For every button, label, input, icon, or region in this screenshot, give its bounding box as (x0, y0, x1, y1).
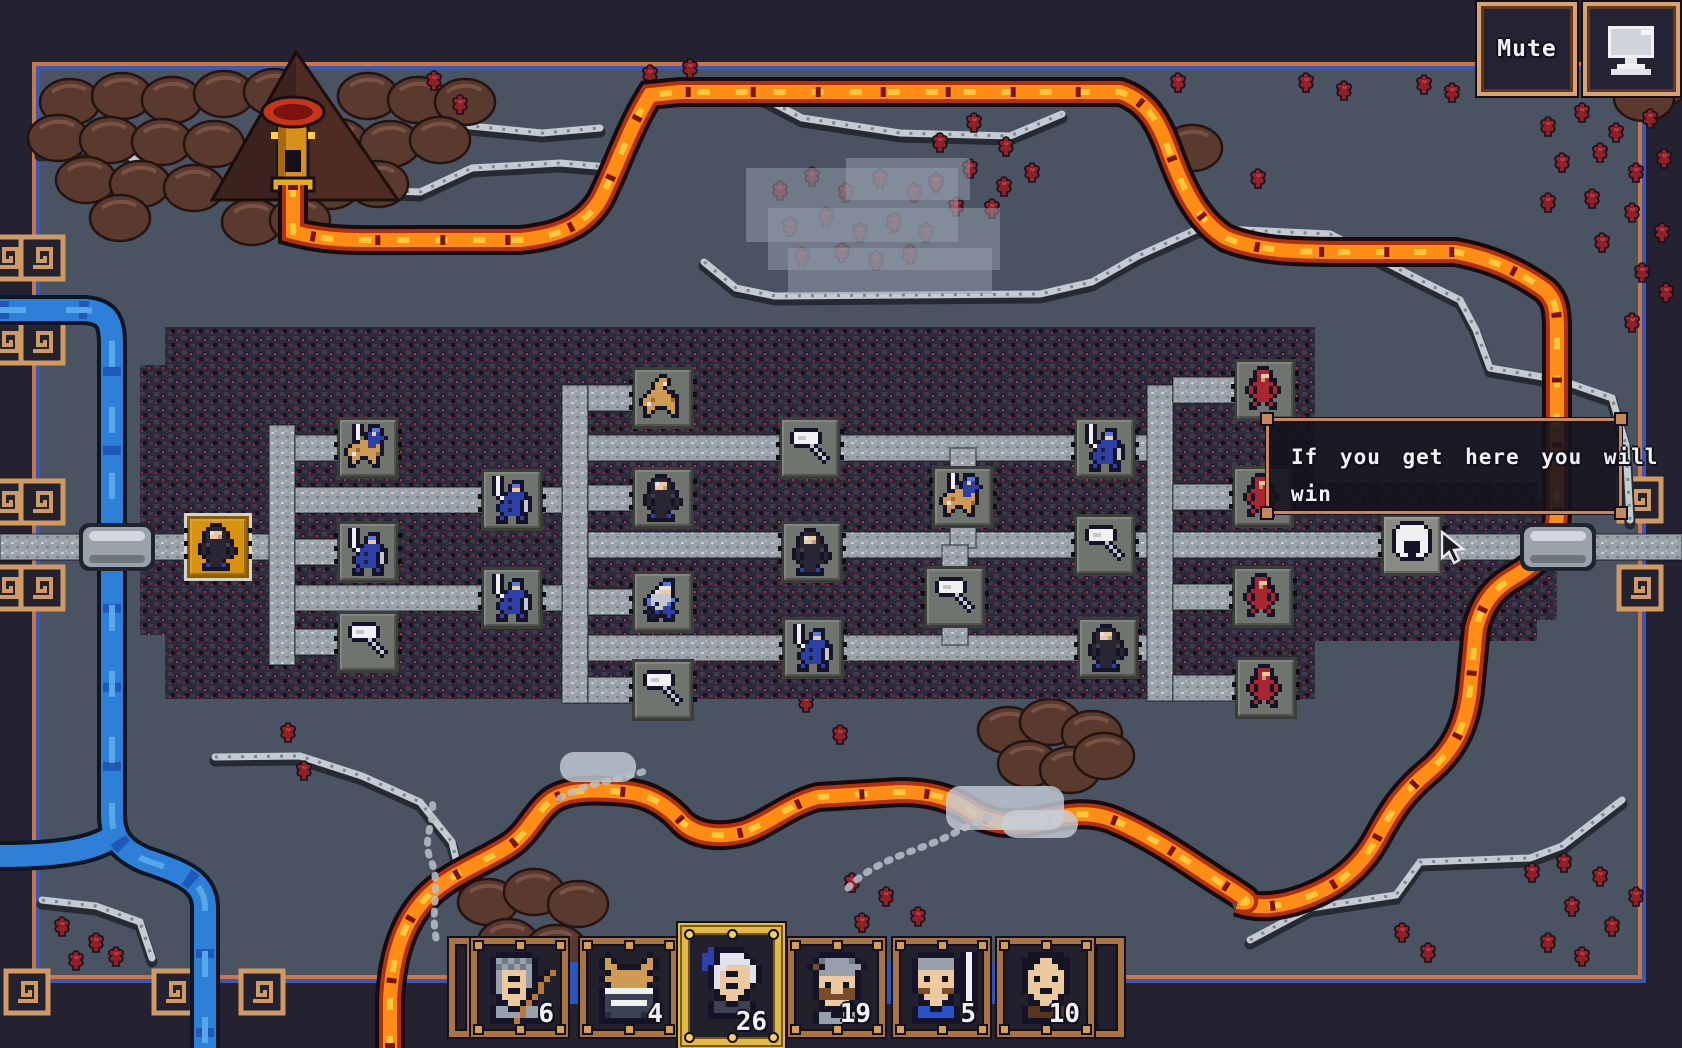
hammer-icon (931, 573, 979, 621)
party-slot-bald[interactable]: 10 (997, 938, 1094, 1037)
monk-icon (788, 528, 836, 576)
helm-icon (1388, 521, 1436, 569)
map-node-knight[interactable] (1074, 417, 1136, 479)
party-slot-horned-helm[interactable]: 4 (580, 938, 677, 1037)
tooltip-corner-pin (1260, 506, 1274, 520)
frame-knob (664, 940, 675, 951)
knight-icon (344, 528, 392, 576)
unit-count: 10 (1049, 999, 1080, 1029)
unit-count: 26 (736, 1007, 767, 1037)
unit-count: 5 (960, 999, 976, 1029)
map-node-cavalry[interactable] (932, 466, 994, 528)
frame-knob (727, 929, 738, 940)
red-guard-icon (1242, 664, 1290, 712)
map-node-knight[interactable] (337, 521, 399, 583)
frame-knob (473, 940, 484, 951)
frame-knob (790, 1024, 801, 1035)
map-node-knight[interactable] (481, 469, 543, 531)
party-bar-left-cap (449, 938, 473, 1037)
map-node-knight[interactable] (782, 617, 844, 679)
map-node-knight[interactable] (481, 567, 543, 629)
unit-count: 19 (840, 999, 871, 1029)
cavalry-icon (939, 473, 987, 521)
tooltip-corner-pin (1260, 412, 1274, 426)
map-node-cavalry[interactable] (337, 417, 399, 479)
red-guard-icon (1241, 366, 1289, 414)
hammer-icon (786, 424, 834, 472)
red-guard-icon (1239, 573, 1287, 621)
frame-knob (768, 929, 779, 940)
tooltip: If you get here you will win (1266, 418, 1622, 514)
frame-knob (977, 940, 988, 951)
party-slot-elder[interactable]: 26 (682, 927, 781, 1045)
hammer-icon (344, 618, 392, 666)
cursor-icon (1440, 530, 1470, 568)
frame-knob (555, 940, 566, 951)
frame-knob (999, 1024, 1010, 1035)
knight-icon (789, 624, 837, 672)
tooltip-line-1: If you get here you will (1291, 439, 1599, 476)
frame-knob (872, 940, 883, 951)
monitor-icon (1606, 26, 1658, 72)
tooltip-line-2: win (1291, 476, 1599, 513)
frame-knob (999, 940, 1010, 951)
bridge (79, 523, 155, 571)
game-screen: If you get here you will win Mute 642619… (0, 0, 1682, 1048)
map-node-red-guard[interactable] (1232, 566, 1294, 628)
frame-knob (790, 940, 801, 951)
frame-knob (768, 1032, 779, 1043)
frame-knob (624, 940, 635, 951)
horse-icon (639, 374, 687, 422)
bridge (1520, 523, 1596, 571)
swordsman-icon (639, 578, 687, 626)
map-node-horse[interactable] (632, 367, 694, 429)
frame-knob (1041, 940, 1052, 951)
map-node-red-guard[interactable] (1235, 657, 1297, 719)
frame-knob (977, 1024, 988, 1035)
map-node-hammer[interactable] (1074, 514, 1136, 576)
map-node-monk[interactable] (1077, 617, 1139, 679)
frame-knob (1081, 1024, 1092, 1035)
frame-knob (515, 940, 526, 951)
map-node-hammer[interactable] (779, 417, 841, 479)
frame-knob (684, 1032, 695, 1043)
frame-knob (937, 1024, 948, 1035)
frame-knob (895, 940, 906, 951)
map-node-monk[interactable] (187, 516, 249, 578)
map-node-hammer[interactable] (632, 659, 694, 721)
knight-icon (488, 476, 536, 524)
frame-knob (582, 940, 593, 951)
mute-button[interactable]: Mute (1477, 2, 1577, 96)
frame-knob (1081, 940, 1092, 951)
party-bar-right-cap (1090, 938, 1124, 1037)
monk-icon (639, 474, 687, 522)
frame-knob (684, 929, 695, 940)
map-node-monk[interactable] (632, 467, 694, 529)
frame-knob (872, 1024, 883, 1035)
frame-knob (832, 940, 843, 951)
hammer-icon (1081, 521, 1129, 569)
frame-knob (664, 1024, 675, 1035)
frame-knob (582, 1024, 593, 1035)
mute-button-label: Mute (1497, 36, 1556, 62)
tooltip-corner-pin (1614, 412, 1628, 426)
frame-knob (515, 1024, 526, 1035)
party-slot-mustache[interactable]: 19 (788, 938, 885, 1037)
frame-knob (555, 1024, 566, 1035)
monk-icon (1084, 624, 1132, 672)
frame-knob (937, 940, 948, 951)
knight-icon (1081, 424, 1129, 472)
map-node-swordsman[interactable] (632, 571, 694, 633)
frame-knob (624, 1024, 635, 1035)
map-node-monk[interactable] (781, 521, 843, 583)
frame-knob (895, 1024, 906, 1035)
unit-count: 4 (647, 999, 663, 1029)
tooltip-corner-pin (1614, 506, 1628, 520)
map-node-hammer[interactable] (337, 611, 399, 673)
hammer-icon (639, 666, 687, 714)
monk-icon (194, 523, 242, 571)
knight-icon (488, 574, 536, 622)
display-settings-button[interactable] (1583, 2, 1680, 96)
cavalry-icon (344, 424, 392, 472)
party-slot-archer[interactable]: 6 (471, 938, 568, 1037)
map-node-helm[interactable] (1381, 514, 1443, 576)
party-slot-capped-sword[interactable]: 5 (893, 938, 990, 1037)
unit-count: 6 (538, 999, 554, 1029)
frame-knob (473, 1024, 484, 1035)
map-node-hammer[interactable] (924, 566, 986, 628)
